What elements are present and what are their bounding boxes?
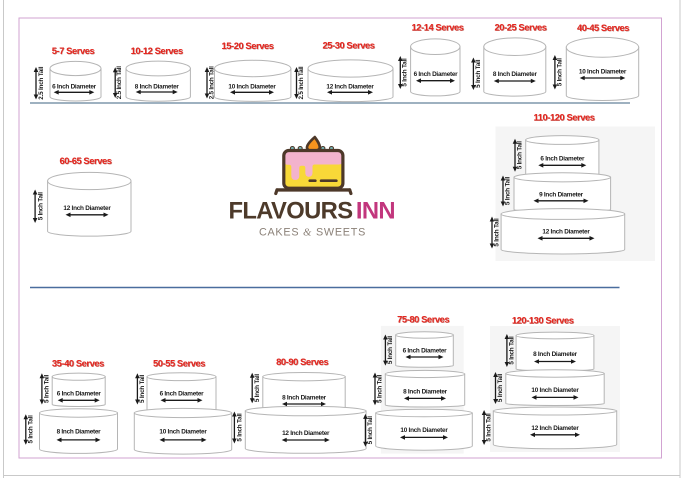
svg-text:5 Inch Tall: 5 Inch Tall: [494, 218, 501, 247]
svg-text:5 Inch Tall: 5 Inch Tall: [475, 59, 482, 88]
svg-text:35-40 Serves: 35-40 Serves: [52, 359, 104, 369]
svg-text:5 Inch Tall: 5 Inch Tall: [38, 192, 45, 221]
svg-text:5 Inch Tall: 5 Inch Tall: [556, 58, 563, 87]
svg-text:2.5 Inch Tall: 2.5 Inch Tall: [38, 66, 45, 99]
svg-text:8 Inch Diameter: 8 Inch Diameter: [57, 429, 102, 436]
svg-text:6 Inch Diameter: 6 Inch Diameter: [160, 391, 205, 398]
svg-text:8 Inch Diameter: 8 Inch Diameter: [135, 84, 180, 91]
svg-text:5 Inch Tall: 5 Inch Tall: [497, 373, 504, 402]
svg-text:5 Inch Tall: 5 Inch Tall: [254, 374, 261, 403]
svg-text:6 Inch Diameter: 6 Inch Diameter: [540, 155, 585, 162]
svg-text:2.5 Inch Tall: 2.5 Inch Tall: [116, 66, 123, 99]
svg-text:12 Inch Diameter: 12 Inch Diameter: [542, 229, 590, 236]
svg-text:5 Inch Tall: 5 Inch Tall: [367, 416, 374, 445]
svg-text:2.5 Inch Tall: 2.5 Inch Tall: [209, 66, 216, 99]
svg-text:CAKES & SWEETS: CAKES & SWEETS: [259, 227, 366, 239]
svg-text:40-45 Serves: 40-45 Serves: [577, 23, 629, 33]
svg-text:8 Inch Diameter: 8 Inch Diameter: [403, 389, 448, 396]
svg-text:5 Inch Tall: 5 Inch Tall: [486, 413, 493, 442]
svg-text:12 Inch Diameter: 12 Inch Diameter: [282, 430, 330, 437]
svg-text:FLAVOURSINN: FLAVOURSINN: [229, 198, 395, 225]
svg-text:5 Inch Tall: 5 Inch Tall: [44, 374, 51, 403]
svg-text:5 Inch Tall: 5 Inch Tall: [377, 374, 384, 403]
svg-text:9 Inch Diameter: 9 Inch Diameter: [539, 191, 584, 198]
svg-text:5 Inch Tall: 5 Inch Tall: [402, 58, 409, 87]
svg-text:15-20 Serves: 15-20 Serves: [221, 41, 273, 51]
svg-text:80-90 Serves: 80-90 Serves: [276, 357, 328, 367]
svg-text:5 Inch Tall: 5 Inch Tall: [505, 176, 512, 205]
svg-text:5 Inch Tall: 5 Inch Tall: [517, 141, 524, 170]
svg-text:12-14 Serves: 12-14 Serves: [411, 23, 463, 33]
svg-text:2.5 Inch Tall: 2.5 Inch Tall: [298, 66, 305, 99]
svg-text:5 Inch Tall: 5 Inch Tall: [509, 336, 516, 365]
svg-text:6 Inch Diameter: 6 Inch Diameter: [414, 71, 459, 78]
svg-text:12 Inch Diameter: 12 Inch Diameter: [326, 84, 374, 91]
svg-text:8 Inch Diameter: 8 Inch Diameter: [282, 394, 327, 401]
svg-text:5 Inch Tall: 5 Inch Tall: [28, 415, 35, 444]
svg-text:6 Inch Diameter: 6 Inch Diameter: [57, 391, 102, 398]
svg-text:5 Inch Tall: 5 Inch Tall: [387, 336, 394, 365]
svg-text:8 Inch Diameter: 8 Inch Diameter: [533, 351, 578, 358]
svg-text:110-120 Serves: 110-120 Serves: [533, 113, 594, 123]
svg-text:10 Inch Diameter: 10 Inch Diameter: [579, 69, 627, 76]
svg-text:5 Inch Tall: 5 Inch Tall: [139, 374, 146, 403]
svg-text:20-25 Serves: 20-25 Serves: [494, 23, 546, 33]
svg-text:10 Inch Diameter: 10 Inch Diameter: [400, 427, 448, 434]
svg-text:25-30 Serves: 25-30 Serves: [322, 41, 374, 51]
svg-text:8 Inch Diameter: 8 Inch Diameter: [493, 71, 538, 78]
svg-text:12 Inch Diameter: 12 Inch Diameter: [531, 425, 579, 432]
svg-text:10-12 Serves: 10-12 Serves: [131, 46, 183, 56]
svg-text:50-55 Serves: 50-55 Serves: [153, 359, 205, 369]
svg-text:75-80 Serves: 75-80 Serves: [397, 315, 449, 325]
svg-text:120-130 Serves: 120-130 Serves: [512, 316, 574, 326]
svg-text:60-65 Serves: 60-65 Serves: [59, 156, 111, 166]
svg-text:10 Inch Diameter: 10 Inch Diameter: [159, 429, 207, 436]
svg-text:6 Inch Diameter: 6 Inch Diameter: [52, 84, 97, 91]
svg-text:5 Inch Tall: 5 Inch Tall: [237, 413, 244, 442]
svg-text:12 Inch Diameter: 12 Inch Diameter: [63, 205, 111, 212]
svg-text:10 Inch Diameter: 10 Inch Diameter: [228, 84, 276, 91]
svg-text:5-7 Serves: 5-7 Serves: [52, 46, 95, 56]
svg-text:10 Inch Diameter: 10 Inch Diameter: [531, 387, 579, 394]
svg-text:6 Inch Diameter: 6 Inch Diameter: [403, 347, 448, 354]
